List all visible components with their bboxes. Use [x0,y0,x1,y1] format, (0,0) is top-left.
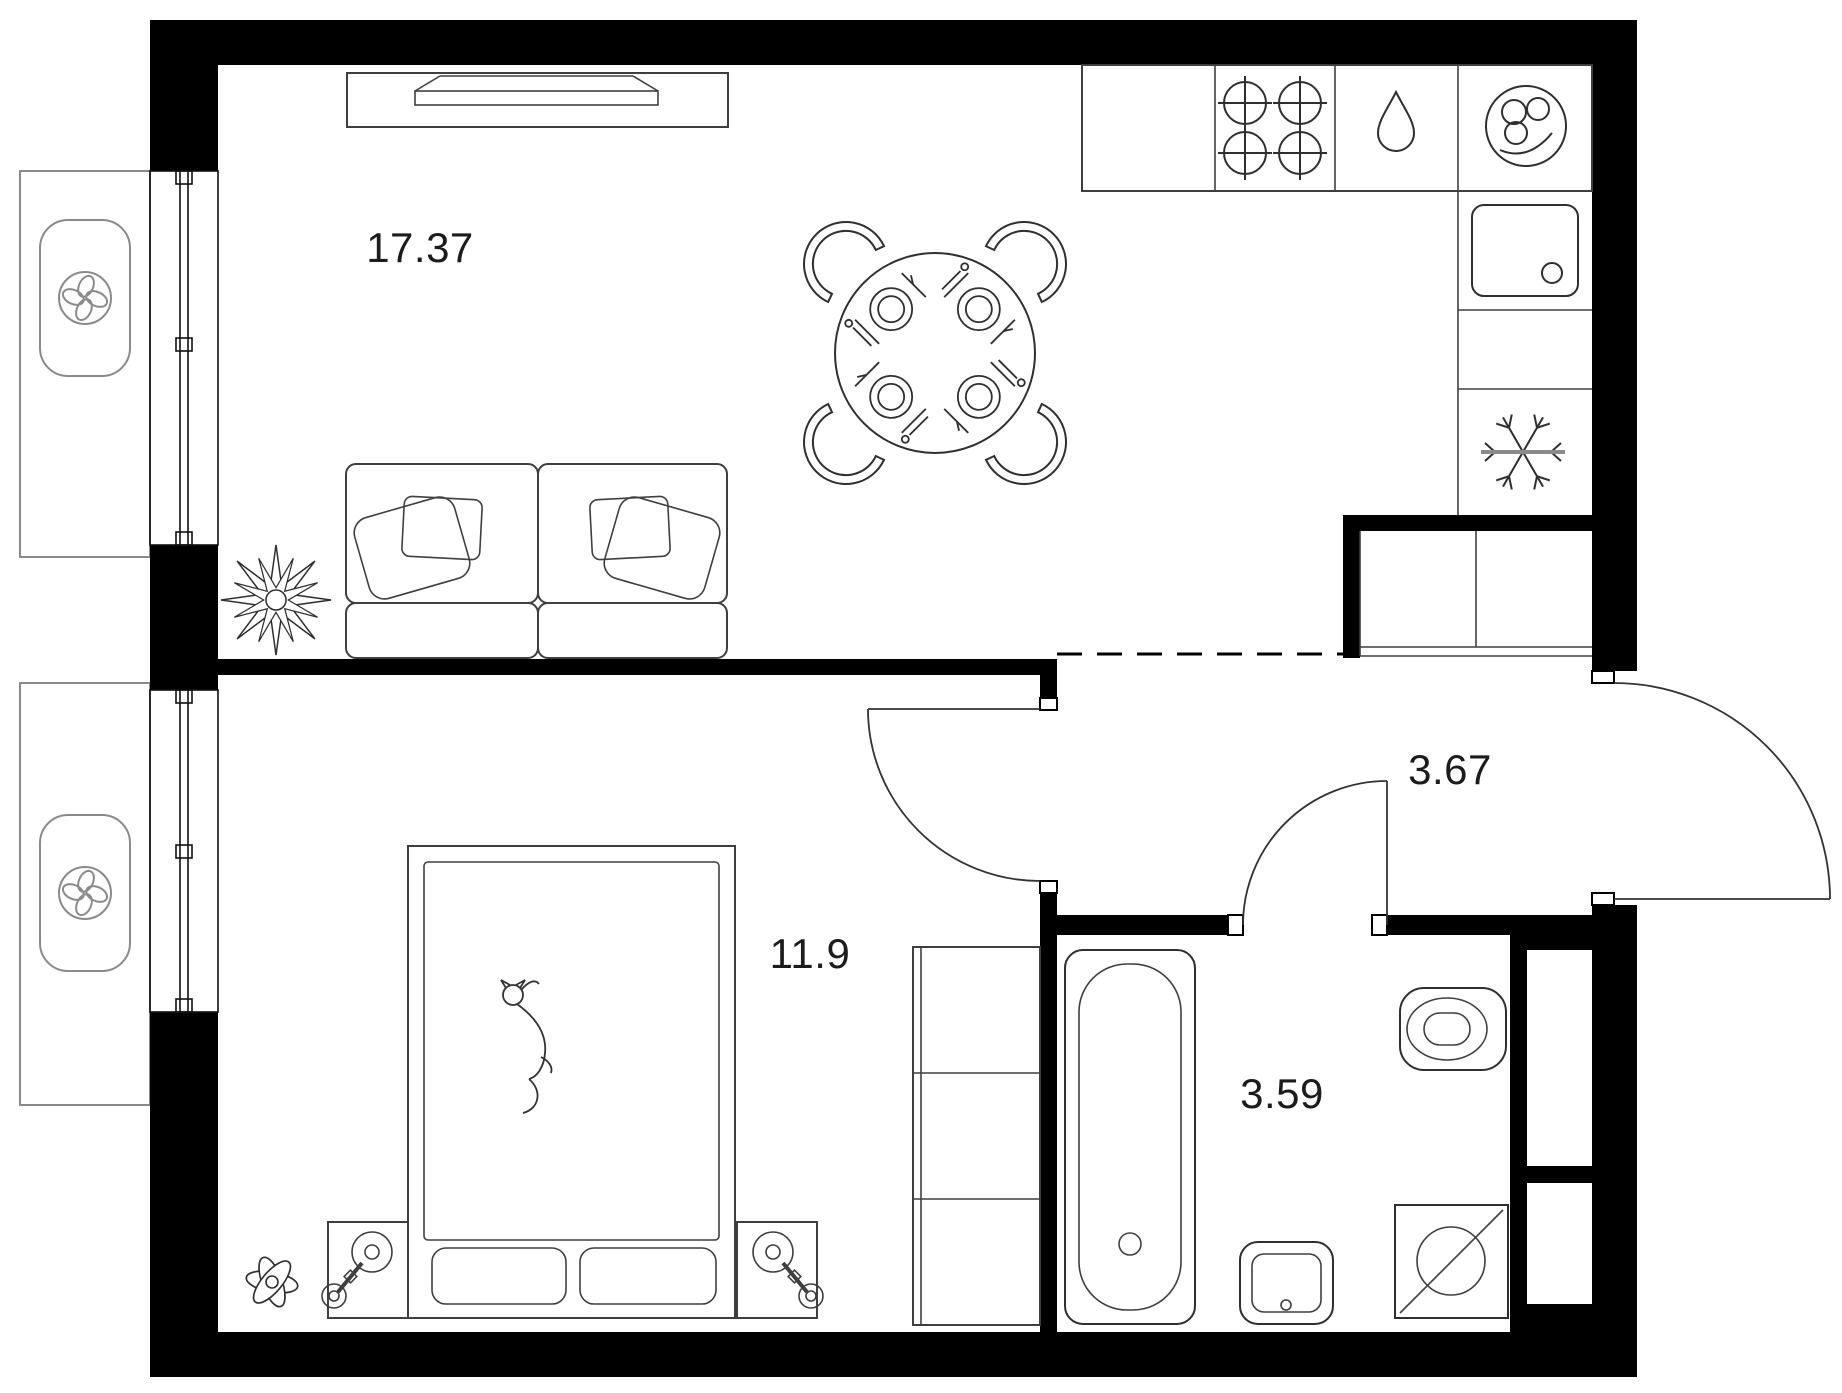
nightstand-right [737,1222,823,1318]
nightstand-left [322,1222,408,1318]
balcony-top [20,171,150,557]
sink-basin-icon [1472,205,1578,296]
plant-icon [217,541,335,659]
duct-shaft [1527,950,1592,1166]
window-bedroom [150,690,218,1012]
dining-table-icon [835,253,1035,453]
bathtub-icon [1065,950,1195,1324]
tv-console [347,73,728,127]
duct-shaft [1527,1183,1592,1304]
room-label-living-kitchen: 17.37 [366,224,474,271]
door-jambs [1040,671,1614,935]
room-label-bedroom: 11.9 [770,930,851,977]
entry-closet [1360,531,1592,656]
ac-unit [40,220,130,376]
door-swing-icon [868,709,1040,881]
fan-icon [59,867,111,919]
room-label-bathroom: 3.59 [1240,1070,1324,1117]
dining-table-group [787,205,1084,502]
floor-plan-drawing: 17.37 11.9 3.67 3.59 [0,0,1842,1393]
entrance-door [1614,683,1830,899]
floor-plan-page: 17.37 11.9 3.67 3.59 [0,0,1842,1393]
room-label-hallway: 3.67 [1408,746,1492,793]
washing-machine-icon [1395,1205,1508,1318]
bedroom-door [868,709,1040,881]
wardrobe-icon [913,947,1040,1325]
sink-icon [1240,1242,1333,1324]
kitchen-counter [1082,65,1592,515]
fan-icon [59,272,111,324]
door-swing-icon [1614,683,1830,899]
bed-icon [408,846,735,1318]
ac-unit [40,815,130,971]
toilet-icon [1400,988,1506,1070]
window-living [150,171,218,545]
snowflake-icon [1481,413,1565,491]
bathroom-door [1243,781,1387,925]
plant-icon [245,1254,300,1310]
door-swing-icon [1243,781,1387,925]
sofa-icon [346,464,727,658]
balcony-bottom [20,683,150,1105]
